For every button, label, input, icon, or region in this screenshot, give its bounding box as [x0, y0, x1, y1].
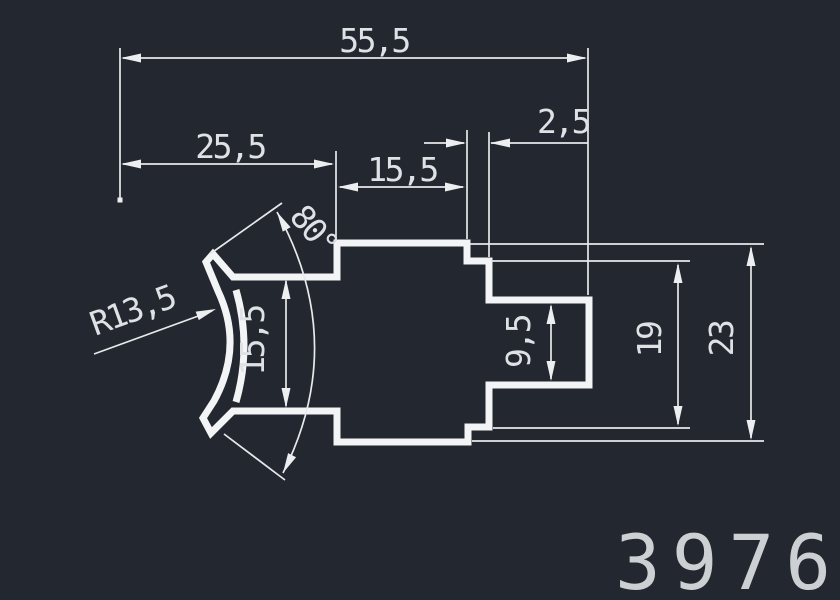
extension-line — [224, 434, 285, 480]
dim-label-jaw-radius: R13,5 — [85, 277, 181, 344]
definition-point — [118, 198, 123, 203]
arrowhead — [547, 304, 556, 324]
arrowhead — [674, 406, 683, 426]
arrowhead — [490, 139, 510, 148]
arrowhead — [282, 279, 291, 299]
dim-label-total-width: 55,5 — [339, 21, 409, 60]
arrowhead — [674, 263, 683, 283]
technical-drawing: 55,5 25,5 15,5 2,5 15,5 9,5 — [0, 0, 840, 600]
dimension-jaw-radius: R13,5 — [85, 277, 218, 354]
arrowhead — [445, 183, 465, 192]
arrowhead — [547, 361, 556, 381]
arrowhead — [121, 54, 141, 63]
arrowhead — [446, 139, 466, 148]
arrowhead — [121, 160, 141, 169]
dim-label-inner-height: 19 — [630, 322, 669, 357]
dim-label-total-height: 23 — [702, 321, 741, 356]
dim-label-slot-height: 9,5 — [499, 315, 538, 368]
dim-label-left-offset: 25,5 — [195, 127, 265, 166]
dimension-slot-height: 9,5 — [499, 304, 556, 381]
extension-line — [210, 203, 282, 254]
dim-label-lip-width: 2,5 — [537, 102, 590, 141]
arrowhead — [314, 160, 334, 169]
arrowhead — [282, 388, 291, 408]
dim-label-jaw-opening: 15,5 — [233, 306, 272, 376]
arrowhead — [747, 246, 756, 266]
arrowhead — [567, 54, 587, 63]
cad-drawing-viewport: 55,5 25,5 15,5 2,5 15,5 9,5 — [0, 0, 840, 600]
arrowhead — [279, 453, 296, 475]
dim-label-body-width: 15,5 — [367, 150, 437, 189]
arrowhead — [338, 183, 358, 192]
arrowhead — [196, 305, 218, 320]
part-number: 3976 — [615, 518, 840, 600]
dimension-total-width: 55,5 — [118, 21, 589, 295]
dimension-lip-width: 2,5 — [424, 102, 590, 257]
arrowhead — [747, 420, 756, 440]
